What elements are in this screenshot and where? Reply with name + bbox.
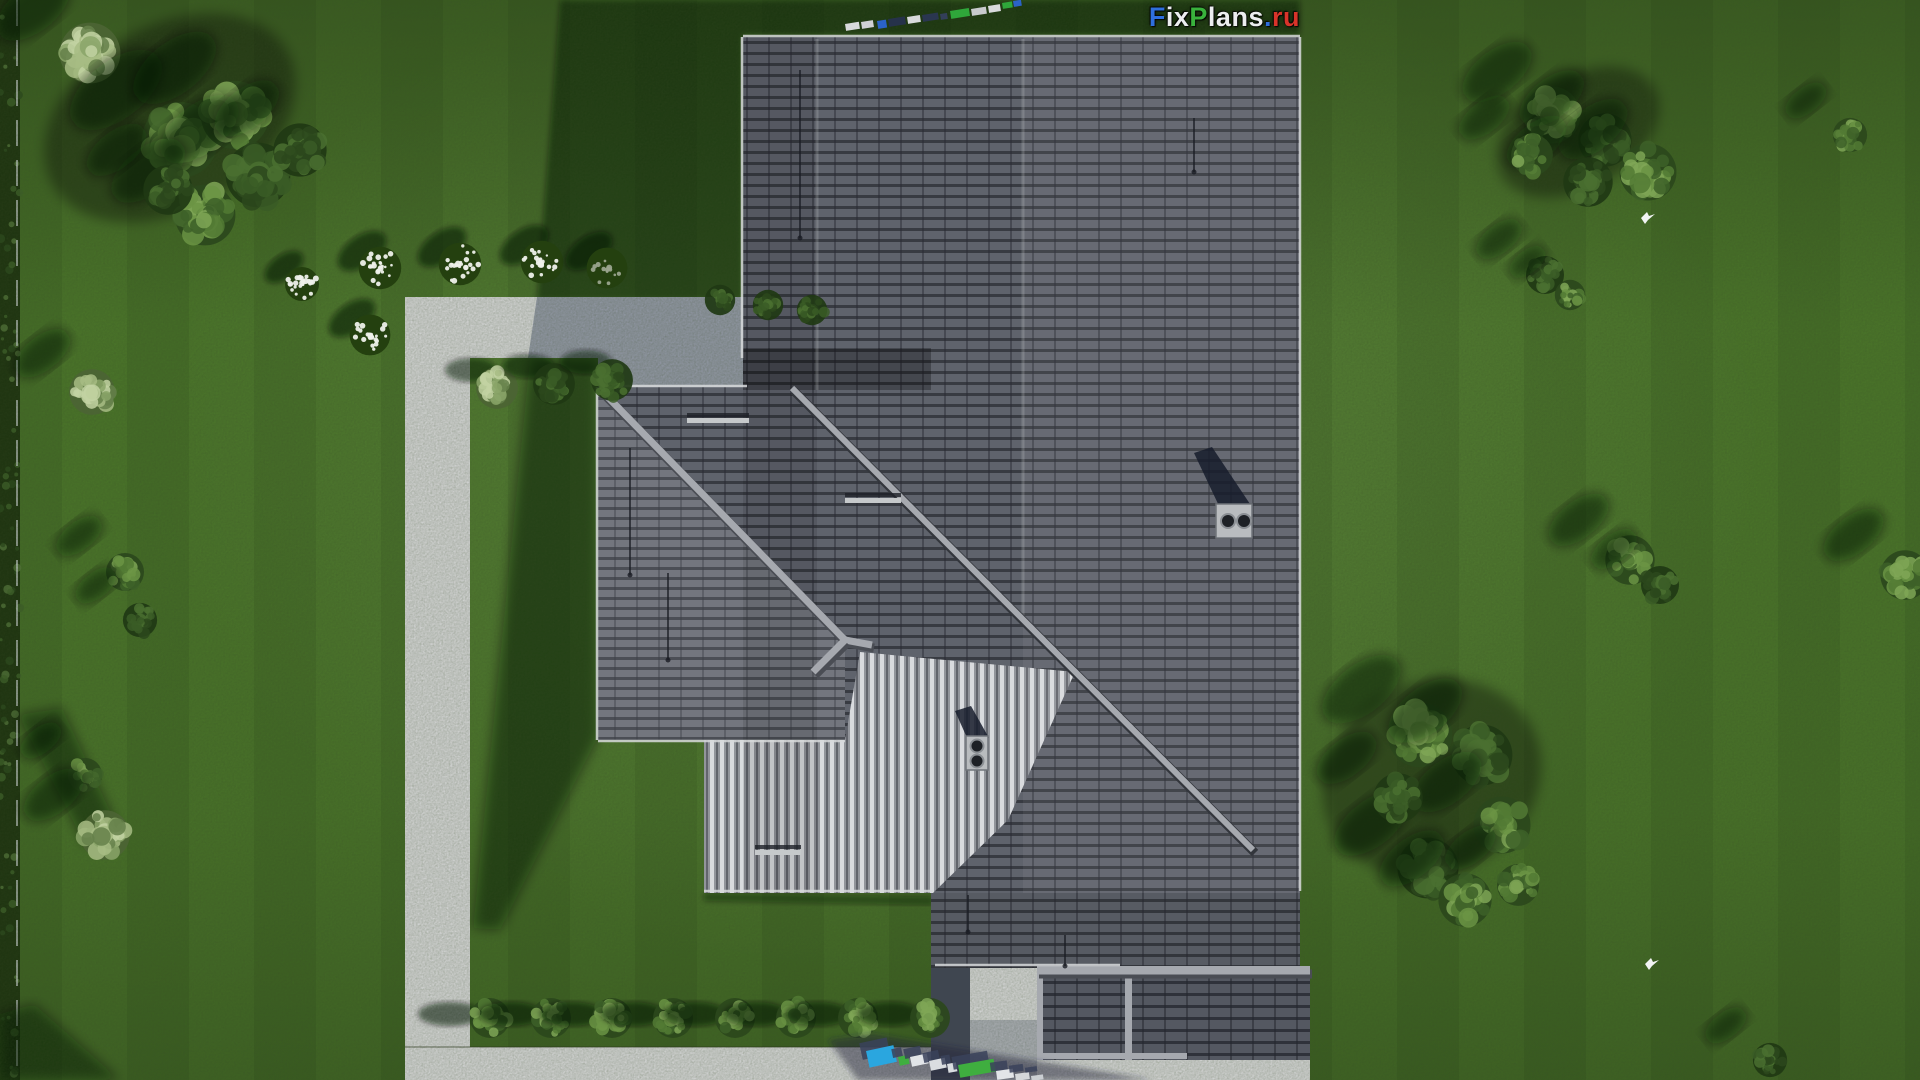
tree-foliage [1420, 747, 1437, 764]
flower-dot [445, 266, 449, 270]
tree-foliage [241, 177, 258, 194]
flower-dot [302, 296, 306, 300]
tree-foliage [1564, 301, 1571, 308]
tree-foliage [101, 391, 111, 401]
tree-foliage [1572, 296, 1582, 306]
tree-foliage [91, 781, 98, 788]
flower-dot [547, 265, 552, 270]
wire-anchor [628, 573, 633, 578]
logo-letter: r [1272, 2, 1283, 32]
tree-foliage [81, 385, 98, 402]
tree-foliage [180, 210, 192, 222]
tree-foliage [1459, 908, 1479, 928]
tree-foliage [553, 1025, 561, 1033]
flower-dot [384, 266, 387, 269]
tree-foliage [92, 813, 100, 821]
tree-foliage [815, 299, 822, 306]
tree-foliage [473, 1019, 481, 1027]
ground-watermark-letter-side [941, 1054, 951, 1064]
flower-dot [606, 265, 612, 271]
flower-dot [388, 274, 391, 277]
tree-foliage [1393, 804, 1404, 815]
tree-foliage [1402, 747, 1417, 762]
tree-foliage [1604, 147, 1619, 162]
tree-foliage [163, 184, 172, 193]
tree-foliage [134, 603, 145, 614]
tree-foliage [802, 305, 808, 311]
tree-foliage [1567, 292, 1573, 298]
flower-dot [288, 283, 292, 287]
tree-foliage [723, 303, 732, 312]
tree-foliage [720, 1022, 732, 1034]
tree-foliage [109, 818, 126, 835]
tree-foliage [1407, 796, 1421, 810]
roof-plane-lower-block [1037, 968, 1310, 1060]
flower-dot [355, 327, 360, 332]
tree-foliage [92, 827, 111, 846]
logo-letter: x [1174, 2, 1190, 32]
tree-foliage [1466, 886, 1479, 899]
tree-foliage [1774, 1059, 1780, 1065]
tree-foliage [1593, 161, 1602, 170]
tree-foliage [1584, 197, 1593, 206]
chimney-pipe [1221, 514, 1235, 528]
tree-foliage [1629, 574, 1639, 584]
tree-foliage [1512, 155, 1525, 168]
tree-foliage [113, 555, 125, 567]
tree-foliage [762, 310, 771, 319]
tree-foliage [1511, 865, 1520, 874]
flower-dot [461, 244, 464, 247]
flower-dot [376, 282, 381, 287]
flower-dot [380, 265, 383, 268]
site-aerial-view: FixPlans.ru FixPlans.ru [0, 0, 1920, 1080]
tree-foliage [1650, 588, 1660, 598]
tree-foliage [1392, 786, 1401, 795]
tree-foliage [1528, 873, 1538, 883]
tree-foliage [1491, 752, 1509, 770]
tree-foliage [137, 617, 144, 624]
flower-dot [540, 273, 543, 276]
wire-anchor [1063, 964, 1068, 969]
tree-foliage [1853, 141, 1863, 151]
flower-dot [295, 293, 298, 296]
flower-dot [383, 254, 388, 259]
wire-anchor [966, 930, 971, 935]
tree-foliage [848, 1022, 863, 1037]
flower-dot [304, 275, 308, 279]
tree-foliage [309, 155, 324, 170]
logo-letter: l [1208, 2, 1216, 32]
tree-foliage [291, 128, 304, 141]
tree-foliage [1550, 269, 1560, 279]
tree-foliage [495, 369, 502, 376]
scene-svg [0, 0, 1920, 1080]
tree-foliage [1636, 151, 1646, 161]
tree-foliage [1847, 127, 1860, 140]
tree-foliage [85, 45, 97, 57]
snow-guard-shadow [845, 493, 901, 497]
flower-dot [379, 262, 382, 265]
roof-face-tint [743, 37, 817, 893]
flower-dot [371, 278, 376, 283]
snow-guard-shadow [755, 845, 801, 849]
tree-foliage [853, 1016, 860, 1023]
ridge-trim [1037, 968, 1043, 1060]
flower-dot [384, 335, 387, 338]
flower-dot [450, 279, 453, 282]
tree-foliage [284, 145, 298, 159]
flower-dot [552, 269, 555, 272]
tree-foliage [1560, 292, 1566, 298]
tree-foliage [296, 159, 311, 174]
tree-foliage [603, 375, 611, 383]
ridge-cap [845, 640, 872, 645]
logo-letter: F [1149, 2, 1166, 32]
flower-dot [530, 264, 534, 268]
tree-foliage [589, 1015, 603, 1029]
wire-anchor [1192, 170, 1197, 175]
flower-dot [607, 281, 611, 285]
flower-dot [375, 254, 381, 260]
tree-foliage [1570, 165, 1586, 181]
tree-foliage [600, 388, 610, 398]
tree-foliage [916, 1001, 928, 1013]
flower-dot [598, 280, 602, 284]
tree-foliage [489, 1027, 499, 1037]
tree-foliage [548, 376, 557, 385]
flower-dot [592, 264, 597, 269]
tree-foliage [538, 387, 545, 394]
flower-dot [366, 255, 372, 261]
snow-guard [687, 418, 749, 423]
logo-letter: a [1216, 2, 1232, 32]
flower-dot [360, 260, 366, 266]
tree-foliage [1620, 166, 1635, 181]
tree-foliage [620, 387, 628, 395]
flower-dot [388, 251, 394, 257]
flower-dot [461, 274, 466, 279]
flower-dot [353, 335, 358, 340]
wire-anchor [666, 658, 671, 663]
tree-foliage [134, 625, 143, 634]
ground-watermark-segment [940, 13, 948, 20]
flower-dot [617, 272, 621, 276]
flower-dot [308, 281, 312, 285]
tree-foliage [1478, 904, 1490, 916]
flower-dot [368, 264, 373, 269]
logo-letter: P [1189, 2, 1208, 32]
logo-letter: s [1248, 2, 1264, 32]
flower-dot [613, 274, 616, 277]
flower-dot [537, 250, 541, 254]
logo-letter: n [1231, 2, 1248, 32]
flower-dot [309, 292, 313, 296]
tree-foliage [1663, 166, 1674, 177]
tree-foliage [761, 302, 769, 310]
tree-foliage [1640, 570, 1654, 584]
flower-dot [464, 257, 469, 262]
flower-dot [375, 339, 379, 343]
flower-dot [380, 326, 385, 331]
tree-foliage [1525, 144, 1539, 158]
flower-dot [454, 263, 458, 267]
roof-vent-pipe [971, 755, 984, 768]
tree-foliage [1835, 137, 1847, 149]
flower-dot [375, 335, 378, 338]
logo-letter: u [1283, 2, 1300, 32]
tree-foliage [1538, 155, 1547, 164]
tree-foliage [148, 612, 155, 619]
flower-dot [472, 250, 475, 253]
tree-foliage [1601, 170, 1613, 182]
roof-vent-pipe [971, 740, 984, 753]
tree-foliage [1895, 556, 1909, 570]
tree-foliage [144, 607, 151, 614]
tree-foliage [171, 179, 181, 189]
flower-dot [471, 266, 476, 271]
tree-foliage [1855, 121, 1861, 127]
flower-dot [528, 272, 534, 278]
roof-face-tint [743, 348, 931, 390]
snow-guard [845, 498, 901, 503]
flower-dot [466, 251, 470, 255]
tree-foliage [1496, 820, 1507, 831]
logo-letter: . [1264, 2, 1272, 32]
tree-foliage [936, 1015, 943, 1022]
tree-foliage [127, 568, 141, 582]
flower-dot [445, 258, 449, 262]
chimney-pipe [1237, 514, 1251, 528]
roof-face-tint [931, 893, 1300, 968]
tree-foliage [256, 180, 273, 197]
tree-foliage [1658, 577, 1671, 590]
tree-foliage [1585, 176, 1600, 191]
flower-dot [536, 258, 542, 264]
tree-foliage [1765, 1056, 1774, 1065]
flower-dot [290, 288, 294, 292]
tree-foliage [492, 383, 502, 393]
tree-foliage [922, 1011, 937, 1026]
flower-dot [293, 280, 298, 285]
ridge-trim [1125, 973, 1132, 1060]
flower-dot [360, 323, 366, 329]
flower-dot [370, 343, 374, 347]
ridge-trim [1037, 1053, 1187, 1059]
flower-dot [372, 347, 375, 350]
tree-foliage [1431, 876, 1442, 887]
tree-foliage [717, 292, 728, 303]
flower-dot [369, 334, 374, 339]
flower-dot [466, 271, 469, 274]
tree-foliage [485, 391, 493, 399]
flower-dot [546, 254, 548, 256]
flower-dot [532, 251, 537, 256]
flower-dot [355, 322, 360, 327]
tree-foliage [82, 772, 93, 783]
flower-dot [468, 263, 472, 267]
ground-watermark-segment [877, 20, 887, 29]
flower-dot [361, 337, 366, 342]
flower-dot [449, 263, 454, 268]
flower-dot [463, 265, 469, 271]
fixplans-logo: FixPlans.ru [1149, 2, 1300, 32]
tree-foliage [546, 393, 555, 402]
flower-dot [475, 262, 481, 268]
flower-dot [523, 256, 527, 260]
flower-dot [303, 278, 309, 284]
tree-foliage [1653, 178, 1670, 195]
snow-guard [755, 850, 801, 855]
tree-foliage [1437, 743, 1449, 755]
tree-foliage [1895, 585, 1909, 599]
flower-dot [604, 260, 607, 263]
tree-foliage [1762, 1044, 1775, 1057]
tree-foliage [1901, 570, 1910, 579]
tree-foliage [1481, 807, 1498, 824]
snow-guard-shadow [687, 413, 749, 417]
flower-dot [390, 264, 393, 267]
flower-dot [298, 284, 302, 288]
tree-foliage [775, 1017, 786, 1028]
flower-dot [293, 285, 296, 288]
wire-anchor [798, 236, 803, 241]
tree-foliage [819, 307, 830, 318]
tree-foliage [470, 1007, 481, 1018]
tree-foliage [1538, 282, 1549, 293]
tree-foliage [73, 389, 81, 397]
tree-foliage [1528, 888, 1537, 897]
tree-foliage [1509, 880, 1523, 894]
tree-foliage [196, 213, 212, 229]
logo-letter: i [1166, 2, 1174, 32]
tree-foliage [1497, 872, 1512, 887]
flower-dot [313, 275, 319, 281]
tree-foliage [1510, 801, 1528, 819]
flower-dot [554, 259, 558, 263]
tree-foliage [812, 308, 819, 315]
